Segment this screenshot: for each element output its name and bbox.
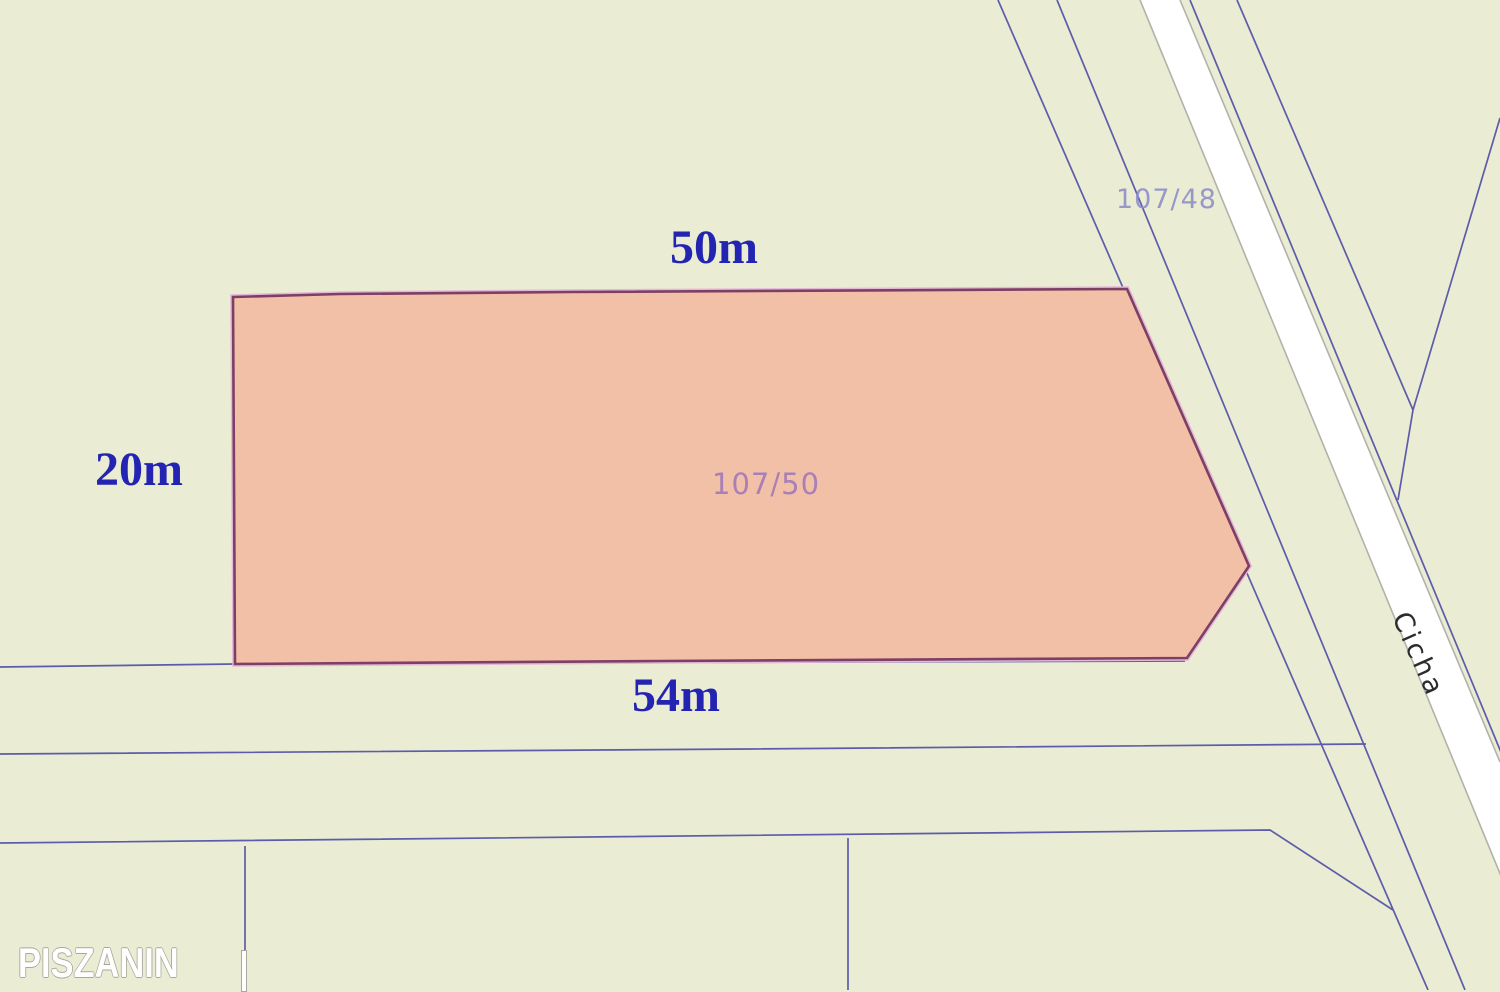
road-right-edge-line — [1180, 0, 1500, 762]
boundary-line-converging-f — [1413, 118, 1500, 410]
watermark-bar — [241, 950, 247, 992]
map-canvas[interactable]: 50m 20m 54m 107/50 107/48 Cicha PISZANIN — [0, 0, 1500, 990]
boundary-line-connector — [1398, 410, 1413, 500]
cadastral-map-drawing — [0, 0, 1500, 990]
main-parcel-group — [233, 289, 1249, 664]
boundary-line-horizontal-3 — [0, 830, 1393, 910]
boundary-line-diagonal-e — [1190, 0, 1500, 762]
parcel-107-50-shape[interactable] — [233, 289, 1249, 664]
boundary-line-horizontal-2 — [0, 744, 1366, 754]
